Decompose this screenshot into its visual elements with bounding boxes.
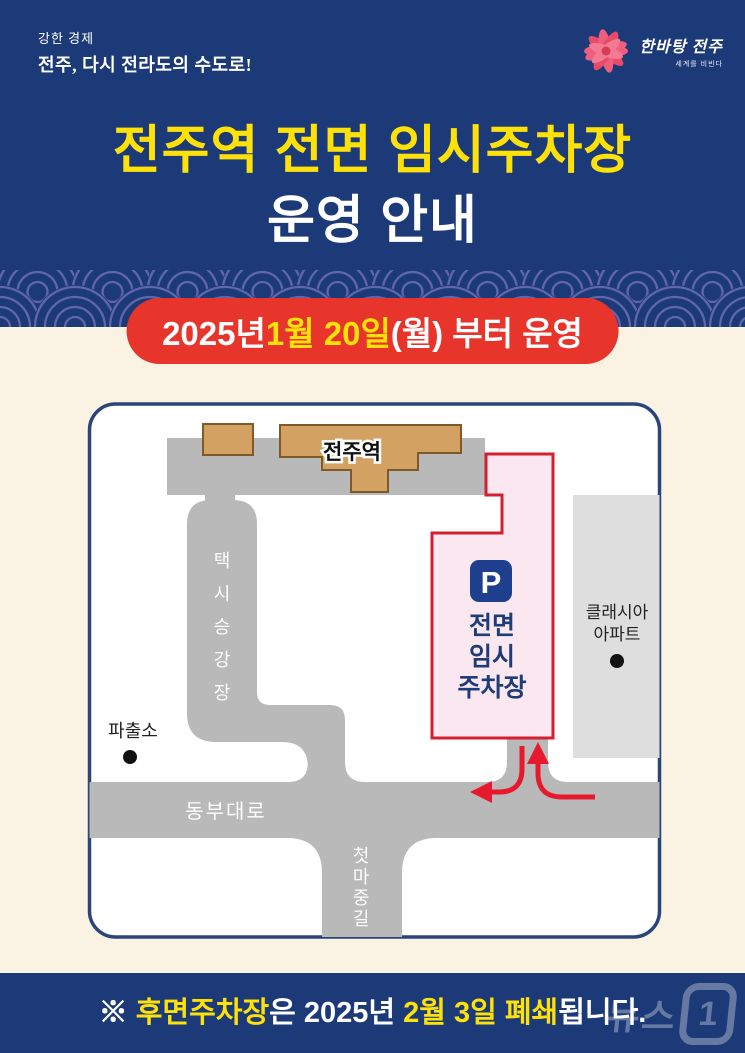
flower-icon (579, 24, 633, 78)
jeonju-city-logo: 한바탕 전주 세계를 비빈다 (579, 24, 723, 78)
title-line1: 전주역 전면 임시주차장 (0, 120, 745, 182)
watermark-text: 뉴스 (604, 988, 680, 1040)
parking-label-line2: 임시 (469, 643, 515, 671)
operation-date-banner: 2025년 1월 20일(월) 부터 운영 (126, 298, 619, 364)
watermark-number: 1 (696, 995, 719, 1034)
apartment-label-line2: 아파트 (594, 625, 641, 644)
news1-watermark: 뉴스 1 (603, 983, 738, 1045)
banner-date-highlight: 1월 20일 (266, 307, 391, 355)
banner-text-2: (월) 부터 운영 (391, 307, 583, 355)
footer-band: ※ 후면주차장은 2025년 2월 3일 폐쇄됩니다. 뉴스 1 (0, 973, 745, 1053)
logo-text: 한바탕 전주 세계를 비빈다 (639, 33, 723, 69)
parking-label-line3: 주차장 (457, 674, 526, 702)
banner-text-1: 2025년 (162, 307, 266, 355)
notice-mark: ※ (99, 997, 136, 1029)
news1-logo-icon: 1 (678, 983, 739, 1045)
slogan-large: 전주, 다시 전라도의 수도로! (38, 51, 252, 77)
svg-text:첫: 첫 (353, 846, 370, 866)
svg-text:택: 택 (214, 551, 231, 571)
dongbu-daero-label: 동부대로 (185, 800, 267, 823)
station-annex-building (203, 424, 253, 455)
station-label: 전주역 (323, 441, 381, 464)
police-location-dot (123, 750, 137, 764)
notice-middle: 은 2025년 (269, 997, 403, 1029)
station-map: 전주역 P 전면 임시 주차장 택 시 승 강 장 클래시아 아파트 파출소 (80, 393, 670, 945)
apartment-label-line1: 클래시아 (586, 603, 649, 622)
svg-text:승: 승 (214, 617, 231, 637)
cheotmajung-gil-label: 첫 마 중 길 (353, 846, 370, 929)
road-dongbu-daero (88, 782, 662, 838)
slogan-small: 강한 경제 (38, 28, 252, 47)
svg-text:시: 시 (214, 584, 231, 604)
police-box-label: 파출소 (108, 721, 158, 741)
header-band: 강한 경제 전주, 다시 전라도의 수도로! 한바탕 전주 세계를 비빈다 (0, 0, 745, 327)
title-line2: 운영 안내 (0, 190, 745, 252)
notice-highlight-1: 후면주차장 (136, 997, 269, 1029)
svg-text:중: 중 (353, 888, 370, 908)
city-slogan: 강한 경제 전주, 다시 전라도의 수도로! (38, 28, 252, 77)
parking-p-letter: P (481, 565, 502, 600)
logo-subtext: 세계를 비빈다 (639, 59, 723, 69)
svg-text:마: 마 (353, 867, 370, 887)
logo-name: 한바탕 전주 (639, 33, 723, 57)
poster-title: 전주역 전면 임시주차장 운영 안내 (0, 120, 745, 252)
apartment-location-dot (610, 654, 624, 668)
poster: 강한 경제 전주, 다시 전라도의 수도로! 한바탕 전주 세계를 비빈다 (0, 0, 745, 1053)
notice-highlight-2: 2월 3일 폐쇄 (403, 997, 558, 1029)
svg-text:강: 강 (214, 650, 231, 670)
svg-text:길: 길 (353, 909, 370, 929)
svg-text:장: 장 (214, 683, 231, 703)
parking-label-line1: 전면 (469, 612, 515, 640)
